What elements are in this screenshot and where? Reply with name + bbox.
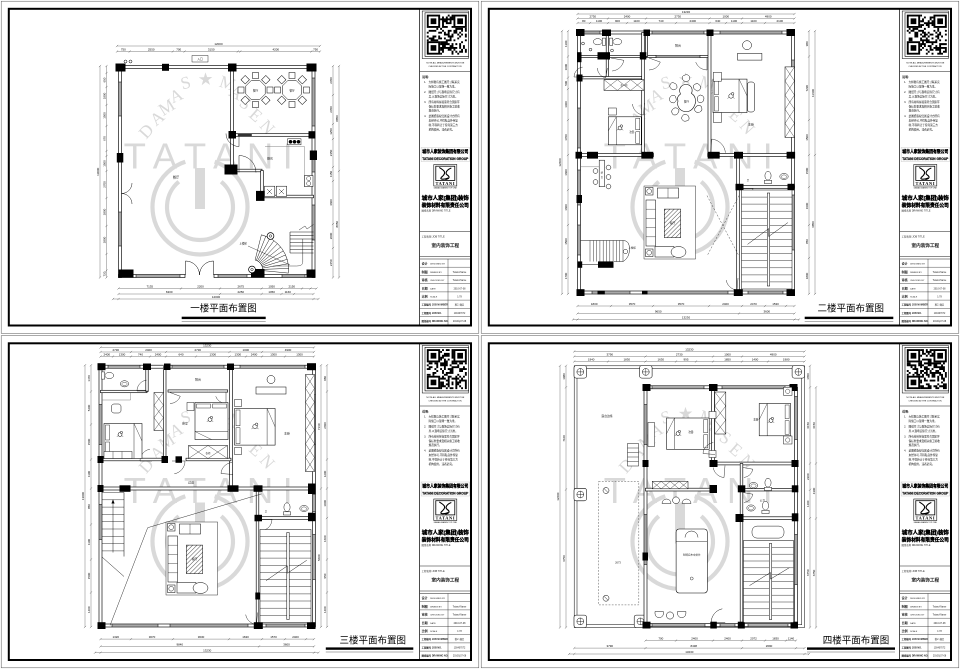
svg-text:TATANI: TATANI (915, 181, 935, 186)
svg-text:NOTE:ALL MEASUREMENTS MUST BE: NOTE:ALL MEASUREMENTS MUST BE (426, 396, 464, 399)
svg-text:CHECKED AT THE CONTRACTOR.: CHECKED AT THE CONTRACTOR. (909, 399, 943, 402)
svg-text:未经许可,不得私自外传复: 未经许可,不得私自外传复 (429, 119, 459, 123)
svg-text:工程图号 JOB NO.: 工程图号 JOB NO. (902, 645, 922, 649)
svg-text:机构使用。违者必究。: 机构使用。违者必究。 (429, 128, 455, 132)
svg-text:异,以现场实际尺寸为准。: 异,以现场实际尺寸为准。 (429, 429, 458, 433)
svg-text:装饰材料有限责任公司: 装饰材料有限责任公司 (902, 201, 949, 209)
svg-text:DESIGNED BY: DESIGNED BY (910, 598, 925, 600)
svg-text:TATANI: TATANI (435, 181, 455, 186)
svg-text:保标准要求及相关施工验收: 保标准要求及相关施工验收 (909, 439, 941, 443)
svg-text:餐厅: 餐厅 (253, 89, 259, 93)
svg-text:日期: 日期 (902, 285, 908, 290)
svg-text:2.: 2. (904, 425, 906, 428)
svg-text:所有材料拼接需符合国家环: 所有材料拼接需符合国家环 (429, 100, 461, 104)
svg-text:950: 950 (805, 239, 809, 244)
svg-text:入口: 入口 (197, 57, 203, 61)
svg-text:13230: 13230 (685, 650, 694, 654)
svg-text:DESIGNED BY: DESIGNED BY (430, 264, 445, 266)
svg-text:CHECKED BY: CHECKED BY (430, 615, 445, 617)
svg-text:1650: 1650 (806, 373, 810, 380)
svg-text:13230: 13230 (682, 316, 691, 320)
svg-text:2730: 2730 (195, 348, 202, 352)
svg-text:3.: 3. (904, 101, 906, 104)
svg-text:DATE: DATE (910, 287, 916, 290)
svg-text:SCALE: SCALE (430, 296, 438, 299)
svg-text:说明:: 说明: (902, 408, 909, 413)
svg-text:1600: 1600 (564, 204, 568, 211)
svg-text:4200: 4200 (273, 48, 280, 52)
svg-text:2010-07-08: 2010-07-08 (934, 623, 946, 625)
svg-text:规范执行。: 规范执行。 (909, 109, 922, 113)
svg-text:1100: 1100 (564, 40, 568, 47)
svg-text:Tstand-Name: Tstand-Name (933, 271, 947, 274)
svg-text:过道: 过道 (188, 480, 194, 485)
svg-text:DAMAS·MASEN TOP ONE: DAMAS·MASEN TOP ONE (914, 186, 938, 189)
svg-text:1830: 1830 (772, 637, 779, 641)
svg-text:2400: 2400 (624, 15, 631, 19)
svg-text:TATANI: TATANI (435, 515, 455, 520)
svg-text:2690: 2690 (766, 644, 773, 648)
svg-text:审核: 审核 (422, 612, 428, 617)
svg-text:950: 950 (323, 573, 327, 578)
svg-text:4.: 4. (904, 450, 906, 453)
svg-text:主卧: 主卧 (753, 418, 759, 422)
svg-text:1050: 1050 (268, 290, 275, 294)
svg-text:6150: 6150 (806, 422, 810, 429)
svg-text:制,不得转让于任何第三方: 制,不得转让于任何第三方 (909, 458, 939, 462)
svg-text:室内装饰工程: 室内装饰工程 (432, 242, 460, 249)
svg-text:7135: 7135 (147, 285, 154, 289)
svg-text:3600: 3600 (283, 642, 290, 646)
svg-text:比例: 比例 (422, 294, 428, 299)
svg-text:大样图与施工图尺寸联系实: 大样图与施工图尺寸联系实 (909, 80, 941, 84)
svg-text:制图: 制图 (422, 603, 428, 608)
svg-text:1700: 1700 (564, 134, 568, 141)
svg-text:1940: 1940 (588, 358, 595, 362)
svg-text:1500: 1500 (87, 572, 91, 579)
svg-text:DATE: DATE (430, 622, 436, 625)
svg-text:2400: 2400 (251, 353, 258, 357)
svg-text:异,以现场实际尺寸为准。: 异,以现场实际尺寸为准。 (909, 429, 938, 433)
svg-text:5600: 5600 (317, 554, 321, 561)
svg-text:1300: 1300 (235, 353, 242, 357)
svg-text:1100: 1100 (633, 19, 640, 23)
svg-text:制,不得转让于任何第三方: 制,不得转让于任何第三方 (429, 458, 459, 462)
svg-text:700: 700 (176, 48, 181, 52)
svg-text:1100: 1100 (87, 470, 91, 477)
svg-text:工程编号 JOB NUMBER: 工程编号 JOB NUMBER (422, 303, 449, 307)
svg-text:此图纸版权归属设计方所有: 此图纸版权归属设计方所有 (429, 449, 461, 453)
svg-text:1250: 1250 (329, 128, 333, 135)
svg-text:城市人家(集团)装饰: 城市人家(集团)装饰 (902, 194, 950, 202)
svg-text:1140: 1140 (788, 637, 795, 641)
svg-text:2450: 2450 (329, 259, 333, 266)
svg-text:1:78: 1:78 (457, 631, 462, 633)
svg-text:11600: 11600 (811, 89, 815, 97)
svg-text:二楼平面布置图: 二楼平面布置图 (817, 303, 884, 315)
svg-text:3.: 3. (424, 435, 426, 438)
svg-text:一楼平面布置图: 一楼平面布置图 (190, 303, 257, 315)
svg-text:6750: 6750 (812, 569, 816, 576)
svg-text:1100: 1100 (731, 19, 738, 23)
svg-text:机构使用。违者必究。: 机构使用。违者必究。 (909, 128, 935, 132)
svg-text:500: 500 (564, 80, 568, 85)
svg-text:1580: 1580 (805, 167, 809, 174)
svg-text:DATE: DATE (430, 287, 436, 290)
svg-text:1700: 1700 (564, 272, 568, 279)
svg-text:露台边缘: 露台边缘 (601, 414, 612, 418)
svg-text:1000: 1000 (323, 500, 327, 507)
svg-text:审核: 审核 (902, 277, 908, 282)
svg-text:新砌实木中桌台: 新砌实木中桌台 (683, 553, 701, 557)
svg-text:规范执行。: 规范执行。 (429, 109, 442, 113)
svg-text:1300: 1300 (119, 353, 126, 357)
svg-text:SCALE: SCALE (910, 630, 918, 633)
svg-text:740: 740 (659, 19, 664, 23)
svg-text:720: 720 (103, 271, 107, 276)
svg-text:1.: 1. (904, 416, 906, 419)
svg-text:670: 670 (103, 136, 107, 141)
svg-text:城市人家(集团)装饰: 城市人家(集团)装饰 (422, 194, 470, 202)
svg-text:1300: 1300 (210, 353, 217, 357)
svg-text:1050: 1050 (268, 285, 275, 289)
svg-text:工程编号 JOB NUMBER: 工程编号 JOB NUMBER (422, 637, 449, 641)
svg-text:2.: 2. (424, 91, 426, 94)
svg-text:DRAWN BY: DRAWN BY (430, 271, 442, 274)
svg-text:1600: 1600 (323, 535, 327, 542)
svg-text:衣柜: 衣柜 (205, 451, 211, 455)
svg-text:1320: 1320 (113, 635, 120, 639)
svg-text:工程名称 JOB TITLE: 工程名称 JOB TITLE (422, 234, 445, 238)
svg-text:2.: 2. (424, 425, 426, 428)
svg-text:Tstand-Name: Tstand-Name (453, 279, 467, 282)
svg-text:未经许可,不得私自外传复: 未经许可,不得私自外传复 (429, 453, 459, 457)
svg-text:2400: 2400 (724, 637, 731, 641)
svg-text:12000: 12000 (214, 42, 223, 46)
svg-text:2730: 2730 (676, 353, 683, 357)
svg-text:机构使用。违者必究。: 机构使用。违者必究。 (909, 462, 935, 466)
svg-text:1100: 1100 (750, 19, 757, 23)
svg-text:2010-07-08: 2010-07-08 (934, 288, 946, 290)
svg-text:1470: 1470 (87, 375, 91, 382)
svg-text:4900: 4900 (765, 15, 772, 19)
svg-text:2400: 2400 (691, 637, 698, 641)
svg-text:2700: 2700 (103, 181, 107, 188)
svg-text:阳台: 阳台 (675, 43, 681, 48)
svg-text:3.: 3. (424, 101, 426, 104)
svg-text:TATANI: TATANI (915, 515, 935, 520)
svg-text:1400: 1400 (564, 101, 568, 108)
svg-text:4900: 4900 (285, 348, 292, 352)
svg-text:2010-07-08: 2010-07-08 (454, 623, 466, 625)
svg-text:CHECKED BY: CHECKED BY (430, 280, 445, 282)
svg-text:750: 750 (121, 48, 126, 52)
svg-text:工程名称 JOB TITLE: 工程名称 JOB TITLE (422, 569, 445, 573)
svg-text:1:78: 1:78 (937, 297, 942, 299)
svg-text:DRAWN BY: DRAWN BY (430, 605, 442, 608)
svg-text:4.: 4. (424, 115, 426, 118)
svg-text:980: 980 (323, 376, 327, 381)
svg-text:700: 700 (658, 637, 663, 641)
svg-text:1800: 1800 (805, 272, 809, 279)
svg-text:3790: 3790 (607, 644, 614, 648)
svg-text:工程编号 JOB NUMBER: 工程编号 JOB NUMBER (902, 303, 929, 307)
svg-text:规范执行。: 规范执行。 (909, 443, 922, 447)
svg-text:5400: 5400 (87, 404, 91, 411)
svg-text:12000: 12000 (212, 295, 221, 299)
svg-text:制,不得转让于任何第三方: 制,不得转让于任何第三方 (429, 123, 459, 127)
svg-text:900: 900 (615, 19, 620, 23)
svg-text:1:78: 1:78 (937, 631, 942, 633)
svg-text:CHECKED BY: CHECKED BY (910, 615, 925, 617)
svg-text:980: 980 (805, 41, 809, 46)
svg-text:1.: 1. (424, 81, 426, 84)
svg-text:★: ★ (198, 69, 214, 90)
svg-text:2100: 2100 (777, 19, 784, 23)
svg-text:未经许可,不得私自外传复: 未经许可,不得私自外传复 (909, 453, 939, 457)
svg-text:客厅: 客厅 (192, 557, 198, 561)
svg-text:Tstand-Name: Tstand-Name (453, 614, 467, 617)
svg-text:际施工以现场一致为准。: 际施工以现场一致为准。 (909, 419, 938, 423)
svg-text:2350: 2350 (329, 149, 333, 156)
svg-text:TATANI DECORATION GROUP: TATANI DECORATION GROUP (902, 492, 949, 496)
svg-text:1630: 1630 (242, 635, 249, 639)
svg-text:衣一柜: 衣一柜 (620, 83, 628, 87)
svg-text:制,不得转让于任何第三方: 制,不得转让于任何第三方 (909, 123, 939, 127)
svg-text:640: 640 (179, 353, 184, 357)
svg-text:主卧: 主卧 (748, 122, 754, 127)
svg-text:TATANI DECORATION GROUP: TATANI DECORATION GROUP (902, 157, 949, 161)
svg-text:设计: 设计 (422, 595, 428, 600)
svg-text:1600: 1600 (564, 169, 568, 176)
svg-text:80: 80 (582, 19, 586, 23)
svg-text:比例: 比例 (422, 628, 428, 633)
svg-text:际施工以现场一致为准。: 际施工以现场一致为准。 (909, 85, 938, 89)
svg-text:厨房: 厨房 (267, 156, 273, 161)
svg-text:100407072: 100407072 (934, 313, 946, 315)
svg-text:城市人家装饰集团有限公司: 城市人家装饰集团有限公司 (902, 483, 948, 490)
svg-text:次卧: 次卧 (688, 430, 694, 434)
svg-text:工程图号 JOB NO.: 工程图号 JOB NO. (422, 311, 442, 315)
svg-text:1200: 1200 (323, 470, 327, 477)
svg-text:阳台: 阳台 (195, 377, 201, 382)
svg-text:大样图与施工图尺寸联系实: 大样图与施工图尺寸联系实 (429, 80, 461, 84)
svg-text:图纸编号 DRAWING NO.: 图纸编号 DRAWING NO. (902, 654, 929, 658)
svg-text:100407072: 100407072 (454, 313, 466, 315)
svg-text:1400: 1400 (752, 358, 759, 362)
svg-text:图纸尺寸与现场实际尺寸有: 图纸尺寸与现场实际尺寸有 (429, 90, 461, 94)
svg-text:装饰材料有限责任公司: 装饰材料有限责任公司 (422, 535, 469, 543)
svg-text:2730: 2730 (113, 348, 120, 352)
svg-text:4.: 4. (904, 115, 906, 118)
svg-text:TATANI: TATANI (124, 136, 303, 177)
svg-text:城市人家装饰集团有限公司: 城市人家装饰集团有限公司 (422, 148, 468, 155)
svg-text:6300: 6300 (166, 290, 173, 294)
svg-text:餐厅: 餐厅 (289, 89, 295, 93)
svg-text:日期: 日期 (902, 620, 908, 625)
svg-text:工程图号 JOB NO.: 工程图号 JOB NO. (902, 311, 922, 315)
svg-text:2675: 2675 (238, 285, 245, 289)
svg-text:1150: 1150 (329, 170, 333, 177)
svg-text:1500: 1500 (805, 134, 809, 141)
svg-text:1300: 1300 (270, 353, 277, 357)
svg-text:3.: 3. (904, 435, 906, 438)
svg-text:1630: 1630 (658, 358, 665, 362)
svg-text:1300: 1300 (296, 353, 303, 357)
svg-text:7160: 7160 (317, 423, 321, 430)
svg-text:图纸名称 DRAWING TITLE: 图纸名称 DRAWING TITLE (902, 543, 931, 547)
svg-text:2400: 2400 (104, 353, 111, 357)
svg-text:2800: 2800 (103, 208, 107, 215)
svg-text:工程名称 JOB TITLE: 工程名称 JOB TITLE (902, 569, 925, 573)
svg-text:1:78: 1:78 (457, 297, 462, 299)
svg-text:DESIGNED BY: DESIGNED BY (430, 598, 445, 600)
svg-text:图纸编号 DRAWING NO.: 图纸编号 DRAWING NO. (422, 319, 449, 323)
svg-text:2400: 2400 (690, 19, 697, 23)
svg-text:工程编号 JOB NUMBER: 工程编号 JOB NUMBER (902, 637, 929, 641)
svg-text:NOTE:ALL MEASUREMENTS MUST BE: NOTE:ALL MEASUREMENTS MUST BE (426, 62, 464, 65)
svg-text:2200: 2200 (197, 285, 204, 289)
svg-text:TATANI DECORATION GROUP: TATANI DECORATION GROUP (422, 157, 469, 161)
svg-text:图纸编号 DRAWING NO.: 图纸编号 DRAWING NO. (902, 319, 929, 323)
svg-text:13230: 13230 (685, 348, 694, 352)
svg-text:1000: 1000 (564, 63, 568, 70)
svg-text:1100: 1100 (87, 538, 91, 545)
svg-text:DRAWN BY: DRAWN BY (910, 605, 922, 608)
svg-text:2730: 2730 (675, 15, 682, 19)
svg-text:8950: 8950 (335, 221, 339, 228)
svg-text:际施工以现场一致为准。: 际施工以现场一致为准。 (429, 419, 458, 423)
svg-text:2690: 2690 (323, 422, 327, 429)
svg-text:工程图号 JOB NO.: 工程图号 JOB NO. (422, 645, 442, 649)
svg-text:餐厅: 餐厅 (173, 175, 180, 180)
svg-text:2072: 2072 (750, 637, 757, 641)
svg-text:2673: 2673 (615, 561, 621, 565)
svg-text:1080: 1080 (562, 373, 566, 380)
svg-text:6850: 6850 (811, 221, 815, 228)
svg-text:2400: 2400 (722, 302, 729, 306)
svg-text:1400: 1400 (323, 606, 327, 613)
svg-text:1570: 1570 (270, 635, 277, 639)
svg-text:2.: 2. (904, 91, 906, 94)
svg-text:3070: 3070 (149, 635, 156, 639)
svg-text:比例: 比例 (902, 294, 908, 299)
svg-text:餐厅: 餐厅 (684, 100, 690, 104)
svg-text:CHECKED AT THE CONTRACTOR.: CHECKED AT THE CONTRACTOR. (429, 65, 463, 68)
svg-text:设计: 设计 (422, 261, 428, 266)
svg-text:3570: 3570 (629, 302, 636, 306)
svg-text:制图: 制图 (902, 603, 908, 608)
svg-text:异,以现场实际尺寸为准。: 异,以现场实际尺寸为准。 (429, 94, 458, 98)
svg-text:室内装饰工程: 室内装饰工程 (432, 577, 460, 584)
svg-text:大样图与施工图尺寸联系实: 大样图与施工图尺寸联系实 (429, 415, 461, 419)
svg-text:2200: 2200 (806, 473, 810, 480)
svg-text:设计: 设计 (902, 595, 908, 600)
svg-text:2150: 2150 (289, 285, 296, 289)
svg-text:日期: 日期 (422, 285, 428, 290)
svg-text:上楼梯: 上楼梯 (628, 246, 636, 250)
svg-text:SCALE: SCALE (430, 630, 438, 633)
svg-text:设计: 设计 (902, 261, 908, 266)
svg-text:1800: 1800 (103, 92, 107, 99)
svg-text:客厅: 客厅 (670, 221, 676, 225)
svg-text:TATANI: TATANI (124, 470, 303, 511)
svg-text:装饰材料有限责任公司: 装饰材料有限责任公司 (422, 201, 469, 209)
svg-text:比例: 比例 (902, 628, 908, 633)
svg-text:2000: 2000 (329, 232, 333, 239)
svg-text:4.: 4. (424, 450, 426, 453)
svg-text:6750: 6750 (562, 555, 566, 562)
svg-text:DATE: DATE (910, 622, 916, 625)
svg-text:12600: 12600 (556, 492, 560, 501)
svg-text:NOTE:ALL MEASUREMENTS MUST BE: NOTE:ALL MEASUREMENTS MUST BE (906, 396, 944, 399)
svg-text:2450: 2450 (329, 77, 333, 84)
svg-text:此图纸版权归属设计方所有: 此图纸版权归属设计方所有 (429, 114, 461, 118)
svg-text:室内装饰工程: 室内装饰工程 (912, 242, 940, 249)
svg-text:所有材料拼接需符合国家环: 所有材料拼接需符合国家环 (429, 434, 461, 438)
svg-text:1500: 1500 (103, 160, 107, 167)
svg-text:Tstand-Name: Tstand-Name (453, 271, 467, 274)
svg-text:100407072: 100407072 (454, 647, 466, 649)
svg-text:图纸名称 DRAWING TITLE: 图纸名称 DRAWING TITLE (902, 208, 931, 212)
svg-text:卧室: 卧室 (182, 422, 188, 426)
svg-text:1530: 1530 (772, 302, 779, 306)
svg-text:四楼平面布置图: 四楼平面布置图 (823, 635, 890, 647)
svg-text:图纸编号 DRAWING NO.: 图纸编号 DRAWING NO. (422, 654, 449, 658)
svg-text:1500: 1500 (87, 438, 91, 445)
svg-text:13000: 13000 (81, 492, 85, 501)
svg-text:13230: 13230 (682, 10, 691, 14)
svg-text:1500: 1500 (103, 112, 107, 119)
svg-text:异,以现场实际尺寸为准。: 异,以现场实际尺寸为准。 (909, 94, 938, 98)
svg-text:图纸尺寸与现场实际尺寸有: 图纸尺寸与现场实际尺寸有 (429, 424, 461, 428)
svg-text:9650: 9650 (655, 310, 662, 314)
svg-text:Tstand-Name: Tstand-Name (933, 279, 947, 282)
svg-text:城市人家装饰集团有限公司: 城市人家装饰集团有限公司 (422, 483, 468, 490)
svg-text:850: 850 (87, 504, 91, 509)
svg-text:图纸尺寸与现场实际尺寸有: 图纸尺寸与现场实际尺寸有 (909, 90, 941, 94)
svg-text:4900: 4900 (770, 353, 777, 357)
svg-text:SCALE: SCALE (910, 296, 918, 299)
svg-text:Tstand-Name: Tstand-Name (453, 605, 467, 608)
svg-text:保标准要求及相关施工验收: 保标准要求及相关施工验收 (429, 439, 461, 443)
svg-text:三楼平面布置图: 三楼平面布置图 (339, 635, 406, 647)
svg-text:13230: 13230 (203, 649, 212, 653)
svg-text:1400: 1400 (806, 500, 810, 507)
svg-text:2450: 2450 (329, 106, 333, 113)
svg-text:主卧: 主卧 (284, 431, 290, 436)
svg-text:规范执行。: 规范执行。 (429, 443, 442, 447)
svg-text:9840: 9840 (177, 642, 184, 646)
svg-text:1500: 1500 (564, 238, 568, 245)
svg-text:3630: 3630 (198, 635, 205, 639)
svg-text:城市人家(集团)装饰: 城市人家(集团)装饰 (422, 529, 470, 537)
svg-text:640: 640 (715, 19, 720, 23)
svg-text:1000: 1000 (243, 348, 250, 352)
svg-text:CHECKED AT THE CONTRACTOR.: CHECKED AT THE CONTRACTOR. (429, 399, 463, 402)
svg-text:1980: 1980 (783, 358, 790, 362)
svg-text:制图: 制图 (902, 269, 908, 274)
svg-text:工程名称 JOB TITLE: 工程名称 JOB TITLE (902, 234, 925, 238)
svg-text:日期: 日期 (422, 620, 428, 625)
svg-text:1.: 1. (424, 416, 426, 419)
svg-text:1830: 1830 (624, 358, 631, 362)
svg-text:6750: 6750 (806, 569, 810, 576)
svg-text:1000: 1000 (724, 353, 731, 357)
svg-text:装饰材料有限责任公司: 装饰材料有限责任公司 (902, 535, 949, 543)
svg-text:此图纸版权归属设计方所有: 此图纸版权归属设计方所有 (909, 449, 941, 453)
svg-text:8850: 8850 (335, 115, 339, 122)
